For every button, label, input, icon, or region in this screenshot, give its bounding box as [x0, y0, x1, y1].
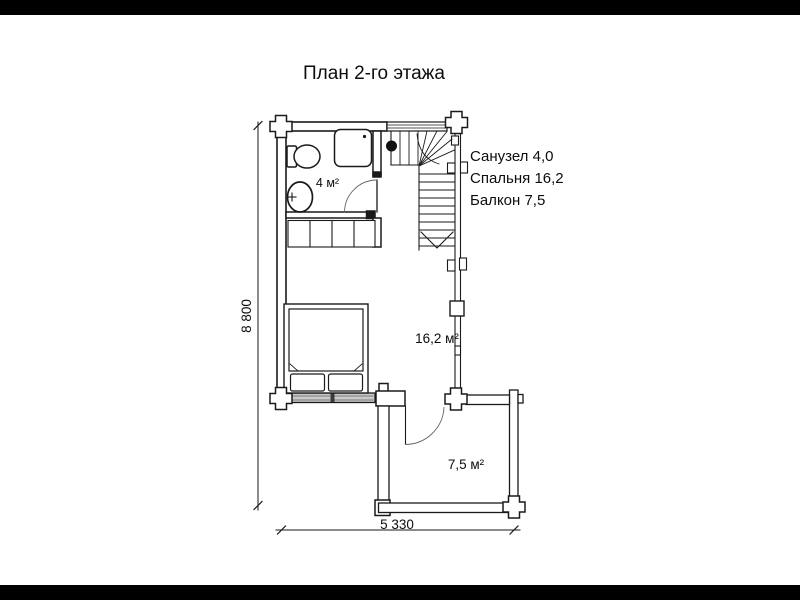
log-joint-balcony-corner	[503, 496, 525, 518]
mullion-mark	[455, 346, 461, 355]
wall-post	[450, 301, 464, 316]
staircase	[386, 131, 455, 250]
mullion-mark	[461, 162, 468, 173]
top-letterbox-bar	[0, 0, 800, 15]
mullion-mark	[452, 136, 459, 145]
balcony-wall-north	[466, 395, 510, 405]
mattress	[289, 309, 363, 371]
log-end-balcony-door	[376, 384, 405, 407]
balcony-walls	[375, 390, 523, 516]
wall-right-glazed	[448, 133, 468, 392]
floor-plan-drawing	[230, 100, 540, 545]
balcony-wall-east	[510, 390, 519, 503]
dimension-label-width: 5 330	[365, 517, 429, 532]
log-joint-top-left	[270, 116, 292, 138]
balcony-wall-west	[378, 406, 389, 502]
mullion-mark	[448, 260, 456, 271]
shower-cabin	[335, 130, 372, 167]
toilet	[287, 145, 320, 168]
room-label-balcony: 7,5 м²	[440, 457, 492, 472]
pillow	[291, 374, 325, 391]
winder-tread	[419, 131, 437, 166]
log-joint-south-mid	[445, 388, 467, 410]
wall-top	[277, 122, 387, 131]
vertical-dimension-line	[254, 122, 262, 511]
balcony-post-stub	[518, 395, 523, 404]
room-label-bathroom: 4 м²	[305, 176, 350, 191]
wardrobe	[288, 221, 375, 248]
balcony-wall-south	[379, 503, 511, 513]
door-swing-arc	[406, 408, 445, 445]
room-label-bedroom: 16,2 м²	[409, 331, 465, 346]
double-bed	[284, 304, 368, 393]
page-title: План 2-го этажа	[254, 62, 494, 86]
mullion-mark	[460, 258, 467, 270]
stair-newel-post	[386, 141, 397, 152]
mullion-mark	[448, 163, 456, 173]
log-joint-top-right	[446, 112, 468, 134]
bottom-letterbox-bar	[0, 585, 800, 600]
window-bedroom-south	[290, 393, 375, 403]
shower-drain-dot	[363, 135, 366, 138]
balcony-door	[406, 406, 445, 445]
window-top	[387, 122, 447, 131]
pillow	[329, 374, 363, 391]
dimension-label-height: 8 800	[239, 294, 255, 338]
